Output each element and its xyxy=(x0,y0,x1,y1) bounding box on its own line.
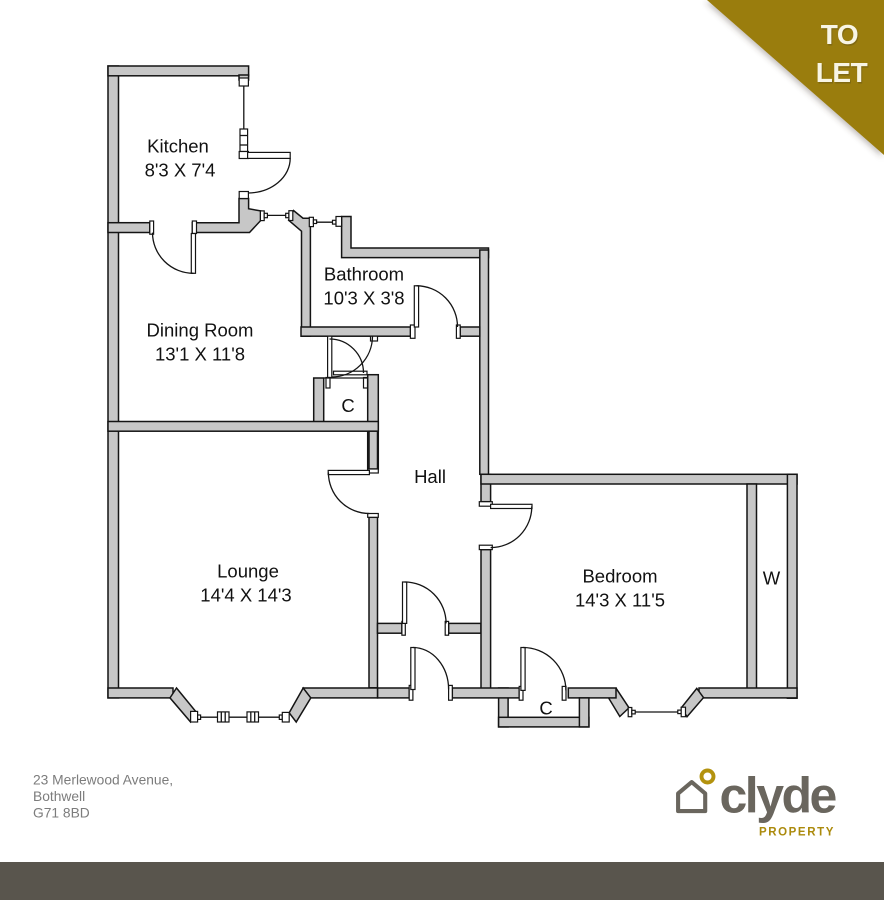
svg-text:8'3 X 7'4: 8'3 X 7'4 xyxy=(145,160,216,181)
svg-text:10'3 X 3'8: 10'3 X 3'8 xyxy=(323,288,404,309)
svg-text:Bathroom: Bathroom xyxy=(324,264,404,285)
svg-text:Hall: Hall xyxy=(414,466,446,487)
svg-text:C: C xyxy=(539,698,552,719)
svg-text:PROPERTY: PROPERTY xyxy=(759,826,835,838)
svg-text:23 Merlewood Avenue,: 23 Merlewood Avenue, xyxy=(33,773,173,788)
svg-text:14'4 X 14'3: 14'4 X 14'3 xyxy=(200,585,291,606)
svg-text:14'3 X 11'5: 14'3 X 11'5 xyxy=(575,590,665,611)
svg-text:TO: TO xyxy=(821,19,858,50)
svg-text:Bedroom: Bedroom xyxy=(582,566,657,587)
svg-text:Kitchen: Kitchen xyxy=(147,136,209,157)
svg-text:W: W xyxy=(763,568,781,589)
svg-text:Lounge: Lounge xyxy=(217,561,279,582)
svg-text:13'1 X 11'8: 13'1 X 11'8 xyxy=(155,344,245,365)
svg-text:clyde: clyde xyxy=(720,768,837,824)
svg-text:Bothwell: Bothwell xyxy=(33,789,85,804)
svg-text:LET: LET xyxy=(816,57,868,88)
svg-text:C: C xyxy=(341,395,354,416)
svg-text:G71 8BD: G71 8BD xyxy=(33,806,90,821)
svg-text:Dining Room: Dining Room xyxy=(147,320,254,341)
